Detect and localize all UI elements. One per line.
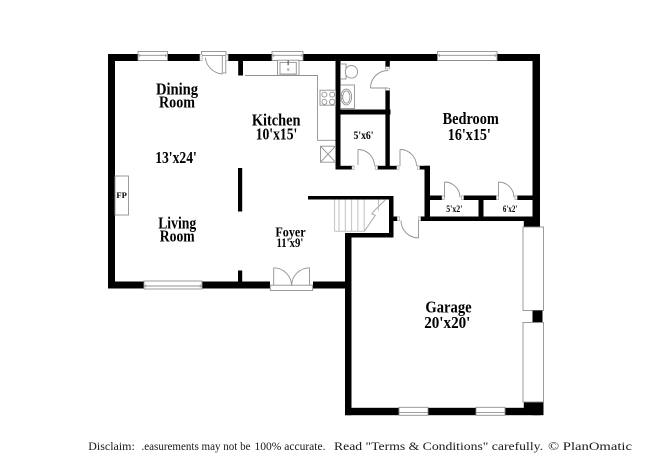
- svg-text:6'x2': 6'x2': [503, 205, 517, 215]
- svg-text:5'x6': 5'x6': [354, 130, 374, 142]
- svg-text:© PlanOmatic: © PlanOmatic: [548, 439, 632, 453]
- svg-text:Disclaim:: Disclaim:: [88, 439, 135, 453]
- svg-text:Read "Terms & Conditions" care: Read "Terms & Conditions" carefully.: [334, 439, 543, 453]
- svg-text:20'x20': 20'x20': [424, 313, 470, 332]
- svg-text:16'x15': 16'x15': [448, 125, 491, 144]
- svg-text:5'x2': 5'x2': [446, 205, 462, 215]
- svg-text:Room: Room: [160, 227, 195, 246]
- svg-text:Room: Room: [159, 93, 195, 112]
- svg-text:10'x15': 10'x15': [256, 125, 298, 144]
- svg-text:FP: FP: [116, 191, 127, 200]
- svg-text:11'x9': 11'x9': [277, 235, 304, 250]
- svg-text:13'x24': 13'x24': [155, 148, 197, 167]
- svg-text:.easurements may not be: .easurements may not be: [142, 439, 251, 453]
- svg-text:100% accurate.: 100% accurate.: [255, 439, 326, 453]
